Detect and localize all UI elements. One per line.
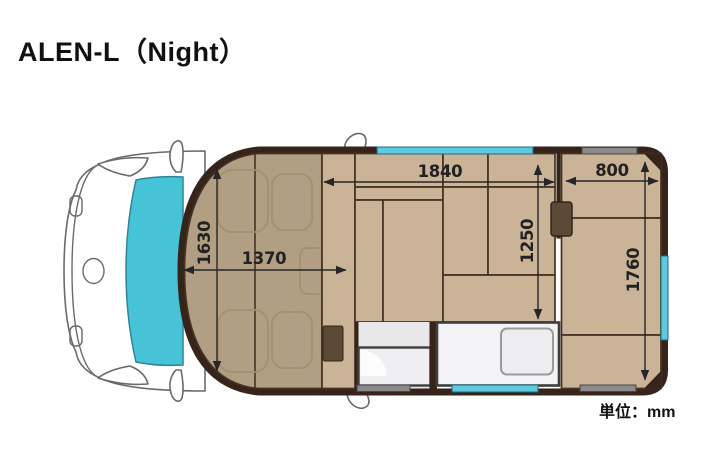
front-bed-area	[185, 154, 323, 389]
dim-label-1250: 1250	[518, 219, 537, 264]
dim-label-800: 800	[595, 161, 629, 180]
cushion-f	[383, 200, 443, 322]
a-pillar-stalk-top	[170, 141, 183, 172]
dim-label-1760: 1760	[624, 248, 643, 293]
vent-bottom-right	[580, 385, 636, 392]
rear-cushion-middle	[562, 218, 662, 335]
kitchen-area	[430, 322, 560, 389]
dim-label-1370: 1370	[242, 249, 287, 268]
table-box	[551, 202, 572, 236]
cushion-e	[355, 200, 383, 322]
rear-cushion-bottom	[562, 335, 662, 389]
a-pillar-stalk-bottom	[170, 370, 183, 401]
window-top	[377, 147, 533, 154]
floorplan-canvas: ALEN-L（Night）	[0, 0, 710, 473]
step-cabinet	[323, 326, 343, 361]
entry-area	[355, 322, 433, 389]
vent-top-right	[582, 148, 637, 155]
dim-label-1630: 1630	[195, 221, 214, 266]
cushion-g	[443, 187, 488, 275]
unit-note: 単位：mm	[599, 398, 675, 422]
vent-bottom-left	[357, 385, 410, 392]
kitchen-sink	[501, 329, 553, 375]
windshield	[126, 177, 183, 366]
window-bottom	[452, 385, 538, 392]
cushion-d	[355, 187, 443, 200]
window-rear	[661, 256, 668, 340]
dim-label-1840: 1840	[418, 162, 463, 181]
